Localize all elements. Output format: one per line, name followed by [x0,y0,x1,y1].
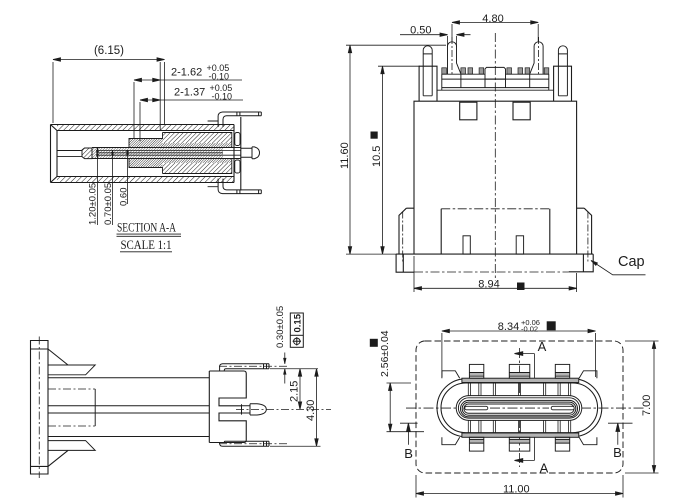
svg-text:-0.10: -0.10 [212,92,233,102]
svg-text:11.60: 11.60 [339,142,351,169]
svg-text:4.80: 4.80 [482,13,503,25]
svg-text:-0.10: -0.10 [209,72,230,82]
svg-text:1.20±0.05: 1.20±0.05 [88,183,99,225]
svg-text:2-1.37: 2-1.37 [174,87,205,99]
svg-text:2-1.62: 2-1.62 [171,67,202,79]
svg-text:B: B [404,446,413,461]
svg-text:2.15: 2.15 [289,381,301,402]
svg-text:0.70±0.05: 0.70±0.05 [103,183,114,225]
svg-text:0.60: 0.60 [119,188,130,207]
svg-text:SCALE 1:1: SCALE 1:1 [121,238,172,252]
svg-text:(6.15): (6.15) [94,45,124,57]
svg-text:11.00: 11.00 [503,484,530,496]
svg-text:4.30: 4.30 [305,400,317,421]
svg-text:8.94: 8.94 [478,278,499,290]
svg-text:0.50: 0.50 [410,24,431,36]
svg-text:7.00: 7.00 [641,395,653,416]
svg-text:Cap: Cap [618,254,645,270]
svg-text:0.30±0.05: 0.30±0.05 [275,306,286,348]
svg-text:10.5: 10.5 [371,146,383,167]
svg-text:A: A [540,461,549,476]
svg-text:-0.02: -0.02 [521,325,538,334]
svg-text:8.34: 8.34 [498,321,519,333]
svg-text:A: A [538,339,547,354]
svg-text:B: B [613,445,622,460]
svg-text:2.56±0.04: 2.56±0.04 [379,330,391,377]
svg-text:0.15: 0.15 [293,313,304,332]
svg-text:SECTION A-A: SECTION A-A [117,221,176,235]
